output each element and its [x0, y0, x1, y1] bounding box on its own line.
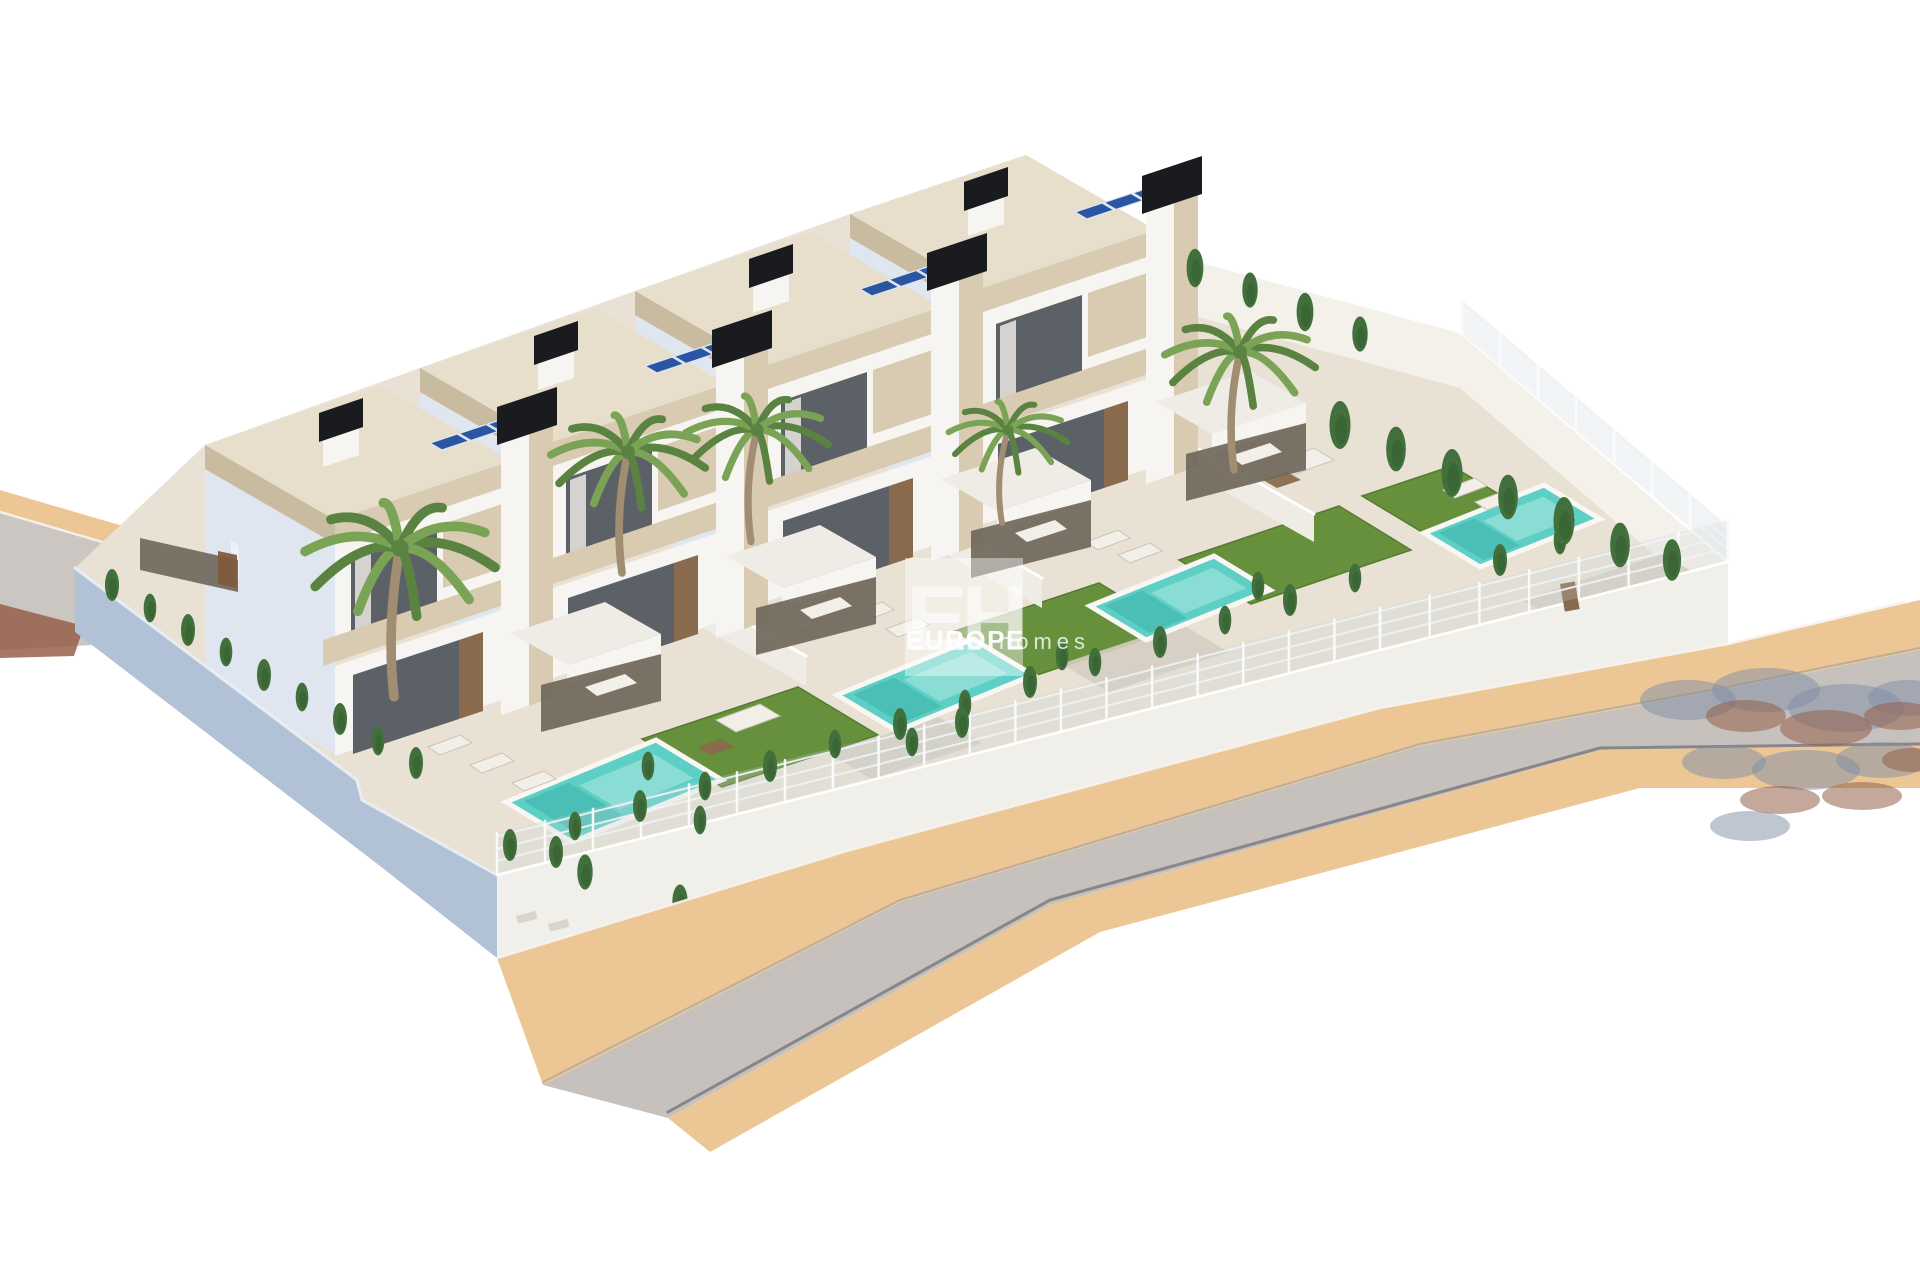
cypress-shrub-shade: [582, 864, 591, 886]
cypress-shrub-shade: [375, 735, 382, 753]
cypress-shrub-shade: [1352, 572, 1359, 590]
cypress-shrub-shade: [1027, 675, 1035, 695]
cypress-shrub-shade: [1247, 282, 1256, 304]
palm-crown: [1233, 345, 1247, 359]
watermark-suffix: homes: [999, 629, 1090, 654]
curtain: [570, 474, 586, 560]
ground-door: [1104, 401, 1128, 488]
cypress-shrub-shade: [1447, 463, 1459, 493]
cypress-shrub-shade: [1255, 580, 1262, 598]
garden-gate: [218, 551, 237, 588]
cypress-shrub-shade: [1391, 439, 1402, 467]
cypress-shrub-shade: [185, 623, 193, 643]
core-travertine: [959, 255, 983, 552]
ground-door: [674, 555, 698, 642]
tree-foliage-blob: [1740, 786, 1820, 814]
ground-door: [459, 632, 483, 719]
cypress-shrub-shade: [897, 717, 905, 737]
cypress-shrub-shade: [1497, 553, 1505, 573]
cypress-shrub-shade: [697, 814, 704, 832]
cypress-shrub-shade: [1503, 487, 1514, 515]
cypress-shrub-shade: [337, 712, 345, 732]
cypress-shrub-shade: [1222, 614, 1229, 632]
cypress-shrub-shade: [572, 820, 579, 838]
cypress-shrub-shade: [299, 691, 306, 709]
palm-crown: [751, 424, 764, 437]
cypress-shrub-shade: [1559, 511, 1571, 541]
cypress-shrub-shade: [767, 759, 775, 779]
cypress-shrub-shade: [909, 736, 916, 754]
cypress-shrub-shade: [507, 838, 515, 858]
cypress-shrub-shade: [959, 715, 967, 735]
tree-foliage-blob: [1822, 782, 1902, 810]
palm-crown: [391, 539, 408, 556]
cypress-shrub-shade: [645, 760, 652, 778]
palm-crown: [621, 445, 635, 459]
cypress-shrub-shade: [553, 845, 561, 865]
cypress-shrub-shade: [147, 602, 154, 620]
cypress-shrub-shade: [1301, 304, 1311, 328]
cypress-shrub-shade: [1157, 635, 1165, 655]
cypress-shrub-shade: [261, 668, 269, 688]
cypress-shrub-shade: [832, 738, 839, 756]
render-svg: EH EUROPE homes: [0, 0, 1920, 1280]
cypress-shrub-shade: [1615, 535, 1626, 563]
cypress-shrub-shade: [223, 646, 230, 664]
cypress-shrub-shade: [1287, 593, 1295, 613]
architectural-render: EH EUROPE homes: [0, 0, 1920, 1280]
cypress-shrub-shade: [1357, 326, 1366, 348]
cypress-shrub-shade: [637, 799, 645, 819]
cypress-shrub-shade: [413, 756, 421, 776]
cypress-shrub-shade: [1668, 551, 1678, 577]
tree-foliage-blob: [1706, 700, 1786, 732]
cypress-shrub-shade: [1191, 260, 1201, 284]
cypress-shrub-shade: [1092, 656, 1099, 674]
tree-shadow-blob: [1710, 811, 1790, 841]
curtain: [1000, 320, 1016, 406]
ground-door: [889, 478, 913, 565]
tree-foliage-blob: [1780, 710, 1872, 746]
cypress-shrub-shade: [702, 780, 709, 798]
cypress-shrub-shade: [1335, 415, 1347, 445]
palm-crown: [1003, 425, 1014, 436]
cypress-shrub-shade: [109, 578, 117, 598]
